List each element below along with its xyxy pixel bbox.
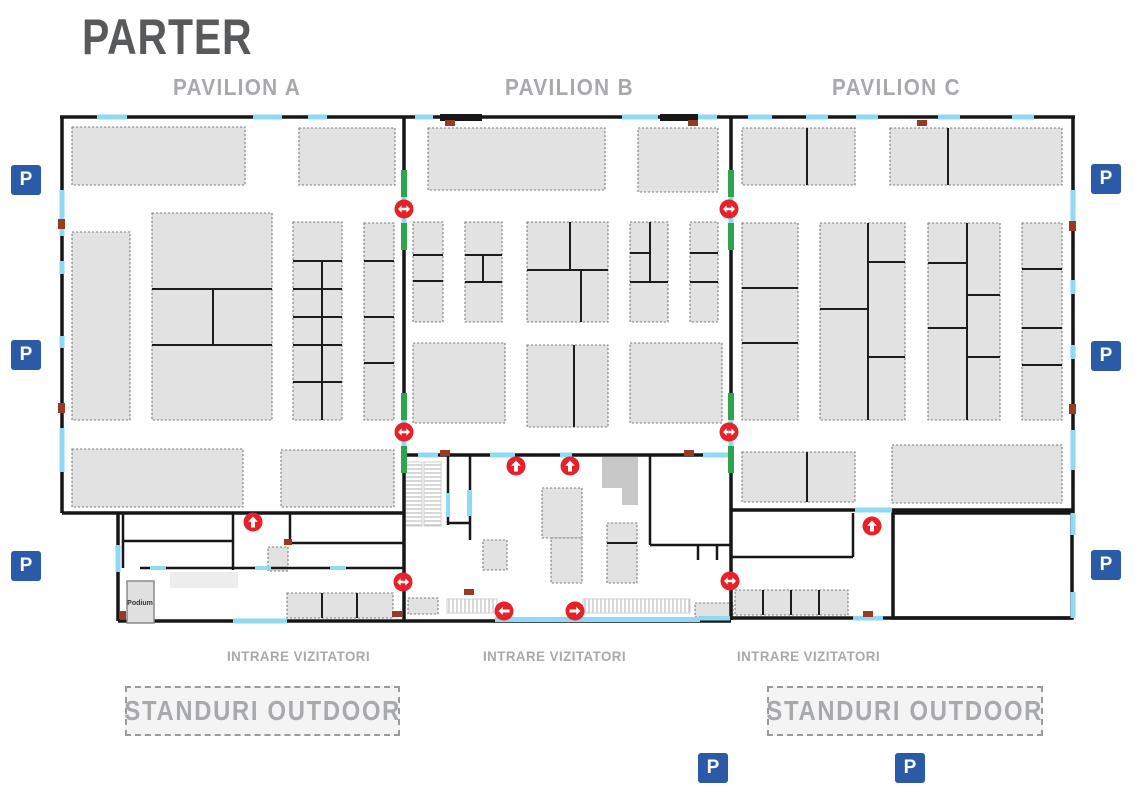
stand[interactable] — [551, 538, 582, 583]
two-way-arrow-icon — [395, 200, 414, 219]
parking-icon: P — [895, 753, 925, 783]
stand[interactable] — [364, 223, 394, 420]
stand[interactable] — [695, 603, 733, 617]
stand[interactable] — [299, 128, 395, 185]
stand[interactable] — [281, 450, 394, 507]
two-way-arrow-icon — [720, 200, 739, 219]
stand[interactable] — [293, 222, 342, 420]
pavilion-b-label: PAVILION B — [505, 74, 634, 101]
two-way-arrow-icon — [720, 423, 739, 442]
floor-plan-graphic: Podium — [0, 0, 1135, 798]
stand[interactable] — [483, 540, 507, 570]
stand[interactable] — [527, 345, 608, 427]
stand[interactable] — [408, 598, 438, 614]
stand[interactable] — [928, 223, 1000, 420]
visitor-entrance-label: INTRARE VIZITATORI — [737, 648, 880, 664]
stand[interactable] — [542, 488, 582, 538]
outdoor-stands-label: STANDURI OUTDOOR — [767, 695, 1044, 727]
podium: Podium — [127, 581, 154, 623]
stand[interactable] — [742, 452, 855, 502]
stand[interactable] — [428, 128, 605, 190]
stand[interactable] — [742, 128, 855, 185]
stand[interactable] — [413, 222, 443, 322]
up-arrow-icon — [507, 457, 526, 476]
left-arrow-icon — [495, 602, 514, 621]
stand[interactable] — [690, 222, 718, 322]
pavilion-c-label: PAVILION C — [832, 74, 961, 101]
floor-plan: Podium PARTER PAVILION A PAVILION B PAVI… — [0, 0, 1135, 798]
podium-label: Podium — [127, 600, 153, 607]
two-way-arrow-icon — [395, 423, 414, 442]
parking-icon: P — [698, 753, 728, 783]
page-title: PARTER — [82, 8, 252, 66]
stand[interactable] — [287, 593, 393, 618]
two-way-arrow-icon — [394, 573, 413, 592]
parking-icon: P — [1091, 550, 1121, 580]
parking-icon: P — [11, 340, 41, 370]
outdoor-stands-label: STANDURI OUTDOOR — [124, 695, 401, 727]
stand[interactable] — [820, 223, 905, 420]
stand[interactable] — [72, 232, 130, 420]
up-arrow-icon — [561, 457, 580, 476]
stand[interactable] — [890, 128, 1062, 185]
pavilion-a-label: PAVILION A — [173, 74, 301, 101]
outdoor-stands-area[interactable]: STANDURI OUTDOOR — [125, 686, 400, 736]
parking-icon: P — [11, 551, 41, 581]
stand[interactable] — [413, 343, 505, 423]
stand[interactable] — [1022, 223, 1062, 420]
stand[interactable] — [527, 222, 608, 322]
up-arrow-icon — [244, 513, 263, 532]
two-way-arrow-icon — [721, 572, 740, 591]
stand[interactable] — [630, 343, 722, 423]
stand[interactable] — [607, 523, 637, 583]
visitor-entrance-label: INTRARE VIZITATORI — [227, 648, 370, 664]
parking-icon: P — [1091, 341, 1121, 371]
stand[interactable] — [72, 127, 245, 185]
stand[interactable] — [892, 445, 1062, 503]
stairs — [405, 462, 441, 526]
stand[interactable] — [742, 223, 798, 420]
stand[interactable] — [72, 449, 243, 507]
right-arrow-icon — [566, 602, 585, 621]
parking-icon: P — [11, 165, 41, 195]
parking-icon: P — [1091, 164, 1121, 194]
visitor-entrance-label: INTRARE VIZITATORI — [483, 648, 626, 664]
stand[interactable] — [638, 128, 718, 192]
service-block — [602, 457, 638, 505]
outdoor-stands-area[interactable]: STANDURI OUTDOOR — [767, 686, 1043, 736]
up-arrow-icon — [863, 517, 882, 536]
